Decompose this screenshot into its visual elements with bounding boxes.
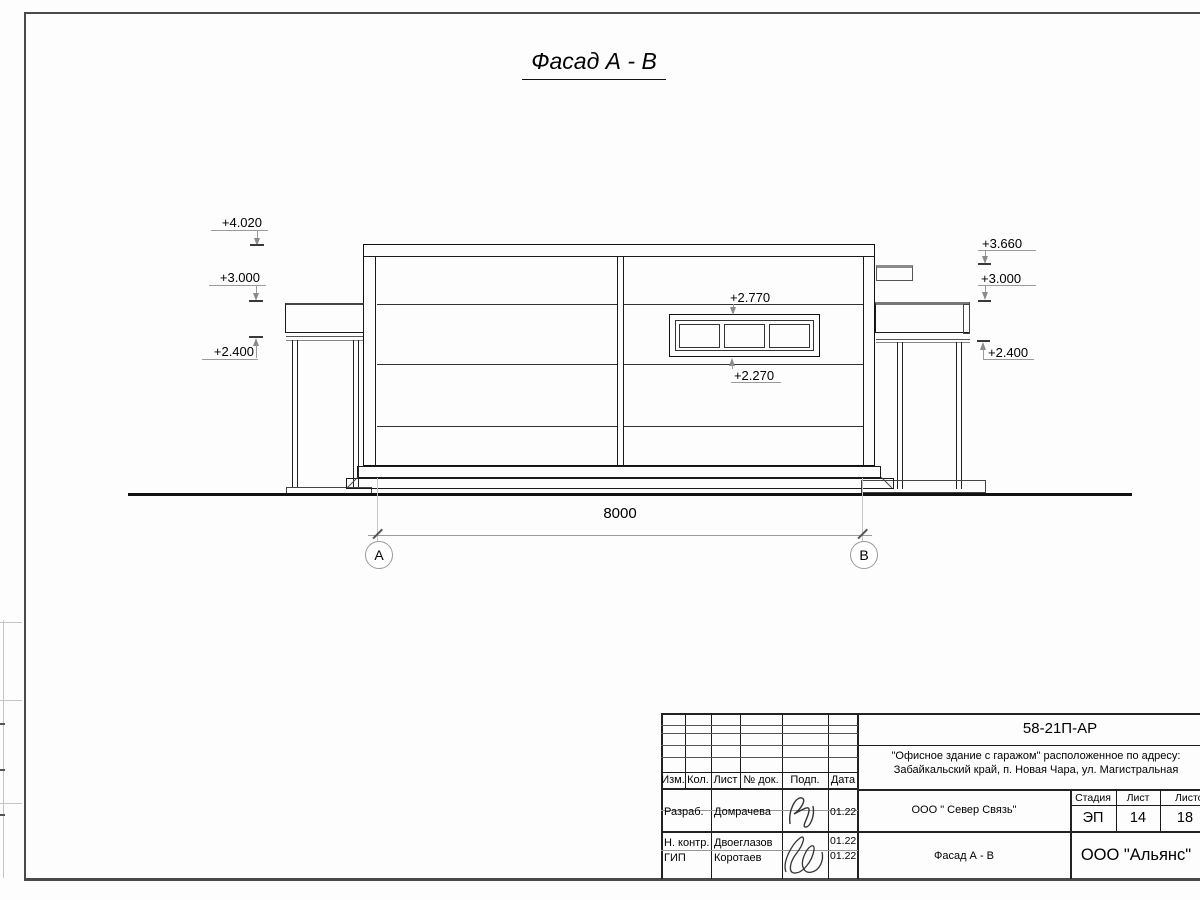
drawing-view-title: Фасад А - В (522, 48, 666, 80)
level-mark-leader (209, 285, 266, 286)
cropped-table-fragment (3, 620, 4, 878)
stage-label: Стадия (1070, 792, 1116, 804)
level-mark-label: +2.770 (718, 290, 782, 305)
level-mark-label: +3.660 (982, 236, 1022, 251)
cladding-line (624, 364, 863, 365)
axis-bubble-b: В (850, 541, 878, 569)
titleblock-line (661, 745, 858, 746)
dimension-line (368, 535, 872, 536)
level-mark-arrow-line (256, 344, 257, 358)
cladding-line (377, 364, 617, 365)
level-mark-tick (978, 300, 991, 302)
date-value: 01.22 (830, 806, 856, 818)
level-mark-tick (250, 244, 264, 246)
sheet-frame-left (24, 12, 26, 880)
level-mark-label: +2.400 (196, 344, 254, 359)
level-mark-leader (984, 359, 1034, 360)
sheet-number-value: 14 (1116, 810, 1160, 826)
cropped-table-fragment (0, 723, 5, 725)
role-label: ГИП (664, 852, 686, 864)
person-name: Домрачева (714, 806, 771, 818)
axis-letter: А (374, 547, 383, 563)
sheet-frame-bottom (24, 878, 1200, 881)
base-slab (346, 478, 894, 489)
cladding-line (624, 426, 863, 427)
person-name: Двоеглазов (714, 837, 772, 849)
titleblock-header-list: Лист (711, 774, 740, 786)
span-dimension-value: 8000 (585, 505, 655, 522)
left-corner-column-line (375, 256, 376, 466)
drawing-sheet: Фасад А - В +4.020 +3.000 (0, 0, 1200, 900)
cladding-line (377, 426, 617, 427)
titleblock-header-izm: Изм. (661, 774, 685, 786)
titleblock-header-kol: Кол. (685, 774, 711, 786)
window-pane (724, 324, 765, 348)
signature (778, 832, 830, 878)
roof-vent-box (876, 265, 913, 281)
person-name: Коротаев (714, 852, 762, 864)
signature (784, 794, 826, 830)
level-mark-leader (978, 285, 1036, 286)
axis-bubble-a: А (365, 541, 393, 569)
window-pane (769, 324, 810, 348)
middle-pilaster-line (623, 256, 624, 466)
down-arrow-icon (982, 292, 988, 300)
level-mark-leader (202, 359, 258, 360)
client-organization: ООО " Север Связь" (858, 804, 1070, 816)
role-label: Разраб. (664, 806, 704, 818)
right-porch-post (897, 342, 903, 489)
plinth-band (357, 466, 881, 478)
level-mark-leader (731, 382, 781, 383)
project-address-line1: "Офисное здание с гаражом" расположенное… (858, 750, 1200, 762)
left-porch-post (292, 340, 298, 488)
titleblock-line (1070, 805, 1200, 806)
right-canopy (875, 302, 970, 333)
stage-value: ЭП (1070, 810, 1116, 826)
date-value: 01.22 (830, 850, 856, 862)
level-mark-tick (249, 300, 263, 302)
drawing-name: Фасад А - В (858, 850, 1070, 862)
left-canopy-soffit-line (286, 336, 363, 337)
down-arrow-icon (730, 307, 736, 315)
titleblock-header-data: Дата (828, 774, 858, 786)
level-mark-label: +2.400 (988, 345, 1028, 360)
level-mark-label: +3.000 (981, 271, 1021, 286)
titleblock-line (858, 789, 1200, 791)
cropped-table-fragment (0, 814, 5, 816)
right-canopy-fascia (963, 304, 970, 334)
titleblock-line (711, 713, 712, 879)
titleblock-border-left (661, 713, 663, 879)
document-number: 58-21П-АР (860, 720, 1200, 737)
titleblock-header-podp: Подп. (782, 774, 828, 786)
cladding-line (377, 304, 617, 305)
date-value: 01.22 (830, 835, 856, 847)
design-company: ООО "Альянс" (1072, 846, 1200, 865)
left-canopy (285, 303, 364, 333)
axis-extension-line (377, 478, 378, 548)
sheet-frame-top (24, 12, 1200, 14)
sheet-label: Лист (1116, 792, 1160, 804)
titleblock-line (661, 788, 858, 790)
titleblock-line (858, 745, 1200, 746)
titleblock-border-top (661, 713, 1200, 715)
axis-letter: В (859, 547, 868, 563)
titleblock-line (661, 772, 858, 773)
level-mark-label: +2.270 (722, 368, 786, 383)
middle-pilaster-line (617, 256, 618, 466)
right-canopy-soffit-line (876, 339, 970, 340)
sheets-total-label: Листов (1160, 792, 1200, 804)
right-corner-column-line (863, 256, 864, 466)
level-mark-tick (978, 263, 991, 265)
titleblock-line (661, 733, 858, 734)
level-mark-label: +3.000 (202, 270, 260, 285)
titleblock-header-doc: № док. (740, 774, 782, 786)
titleblock-line (661, 757, 858, 758)
parapet-band-line (363, 256, 875, 257)
axis-extension-line (862, 478, 863, 548)
level-mark-leader (978, 250, 1036, 251)
titleblock-line (661, 831, 1200, 833)
right-porch-post (956, 342, 962, 489)
ground-line (128, 493, 1132, 496)
level-mark-label: +4.020 (204, 215, 262, 230)
role-label: Н. контр. (664, 837, 709, 849)
titleblock-line (661, 725, 858, 726)
cropped-table-fragment (0, 769, 5, 771)
sheets-total-value: 18 (1160, 810, 1200, 826)
window-pane (679, 324, 720, 348)
level-mark-leader (211, 230, 268, 231)
project-address-line2: Забайкальский край, п. Новая Чара, ул. М… (858, 764, 1200, 776)
